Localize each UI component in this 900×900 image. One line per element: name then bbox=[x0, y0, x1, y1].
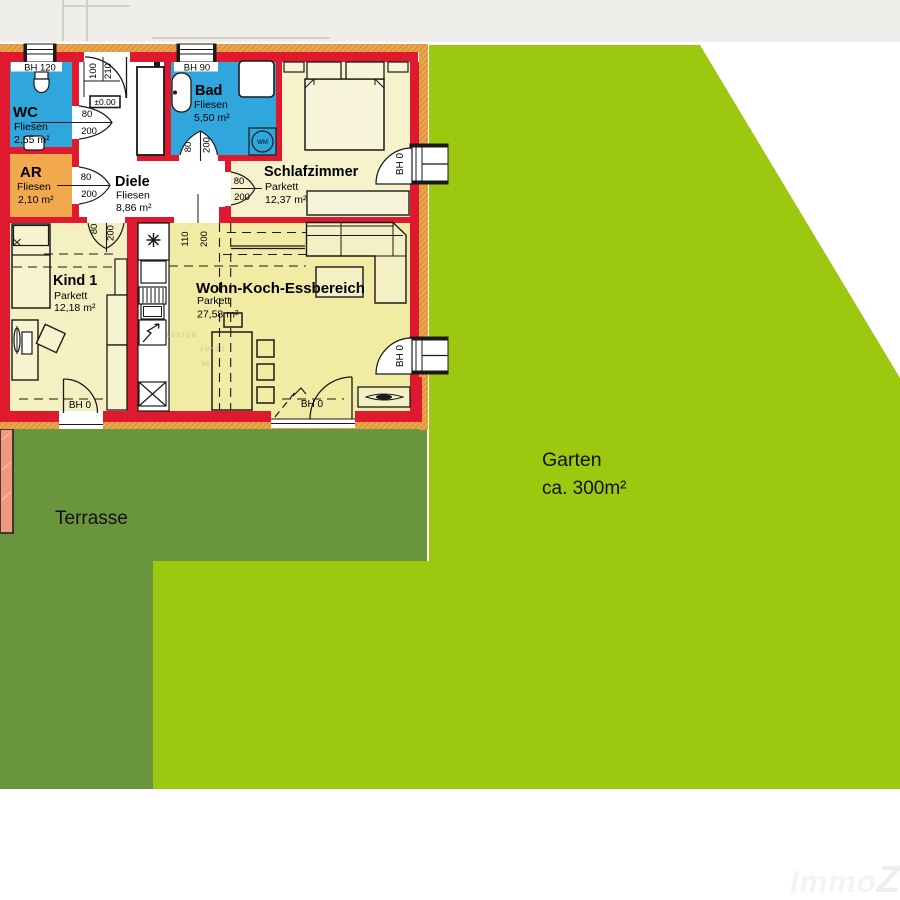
svg-text:200: 200 bbox=[81, 126, 97, 137]
svg-text:Parkett: Parkett bbox=[54, 290, 87, 302]
svg-text:Bad: Bad bbox=[195, 83, 222, 99]
svg-text:BH 0: BH 0 bbox=[69, 400, 92, 411]
svg-text:Terrasse: Terrasse bbox=[55, 508, 128, 529]
svg-text:80: 80 bbox=[81, 172, 92, 183]
svg-text:Fliesen: Fliesen bbox=[116, 190, 150, 202]
svg-text:2,55 m²: 2,55 m² bbox=[14, 134, 50, 146]
svg-text:80: 80 bbox=[234, 176, 245, 187]
svg-text:200: 200 bbox=[81, 189, 97, 200]
svg-text:Diele: Diele bbox=[115, 174, 150, 190]
svg-text:80: 80 bbox=[89, 224, 100, 235]
svg-text:1 S 0 T b M: 1 S 0 T b M bbox=[166, 333, 197, 339]
svg-text:ImmoZ: ImmoZ bbox=[790, 859, 900, 900]
svg-text:12,37 m²: 12,37 m² bbox=[265, 194, 307, 206]
svg-text:210: 210 bbox=[103, 63, 114, 79]
svg-text:100: 100 bbox=[88, 63, 99, 79]
svg-text:Fliesen: Fliesen bbox=[14, 121, 48, 133]
svg-text:AR: AR bbox=[20, 164, 42, 181]
svg-text:12,18 m²: 12,18 m² bbox=[54, 302, 96, 314]
svg-text:200: 200 bbox=[199, 231, 210, 247]
svg-text:Parkett: Parkett bbox=[197, 295, 230, 307]
svg-text:2,10 m²: 2,10 m² bbox=[18, 194, 54, 206]
svg-text:WM: WM bbox=[257, 140, 268, 146]
svg-text:Schlafzimmer: Schlafzimmer bbox=[264, 164, 359, 180]
svg-text:Fliesen: Fliesen bbox=[17, 181, 51, 193]
svg-text:110: 110 bbox=[180, 231, 191, 246]
svg-text:ca. 300m²: ca. 300m² bbox=[542, 478, 626, 499]
svg-text:5,50 m²: 5,50 m² bbox=[194, 112, 230, 124]
svg-text:80: 80 bbox=[183, 142, 194, 153]
svg-text:8,86 m²: 8,86 m² bbox=[116, 202, 152, 214]
svg-text:BH 0: BH 0 bbox=[395, 152, 406, 175]
svg-text:27,58 m²: 27,58 m² bbox=[197, 309, 239, 321]
svg-text:BH 90: BH 90 bbox=[184, 63, 210, 74]
svg-text:Fliesen: Fliesen bbox=[194, 99, 228, 111]
svg-text:BH 0: BH 0 bbox=[301, 399, 324, 410]
svg-text:200: 200 bbox=[106, 225, 117, 241]
svg-text:B5: B5 bbox=[202, 362, 210, 368]
svg-text:80: 80 bbox=[82, 109, 93, 120]
svg-text:200: 200 bbox=[234, 192, 250, 203]
svg-text:BH 0: BH 0 bbox=[395, 344, 406, 367]
svg-text:Kind 1: Kind 1 bbox=[53, 273, 97, 289]
svg-text:±0.00: ±0.00 bbox=[94, 97, 115, 107]
svg-text:Parkett: Parkett bbox=[265, 181, 298, 193]
svg-text:x M * 2x1: x M * 2x1 bbox=[200, 347, 226, 353]
svg-text:Garten: Garten bbox=[542, 449, 602, 471]
svg-text:200: 200 bbox=[202, 137, 213, 153]
svg-text:WC: WC bbox=[13, 104, 38, 121]
